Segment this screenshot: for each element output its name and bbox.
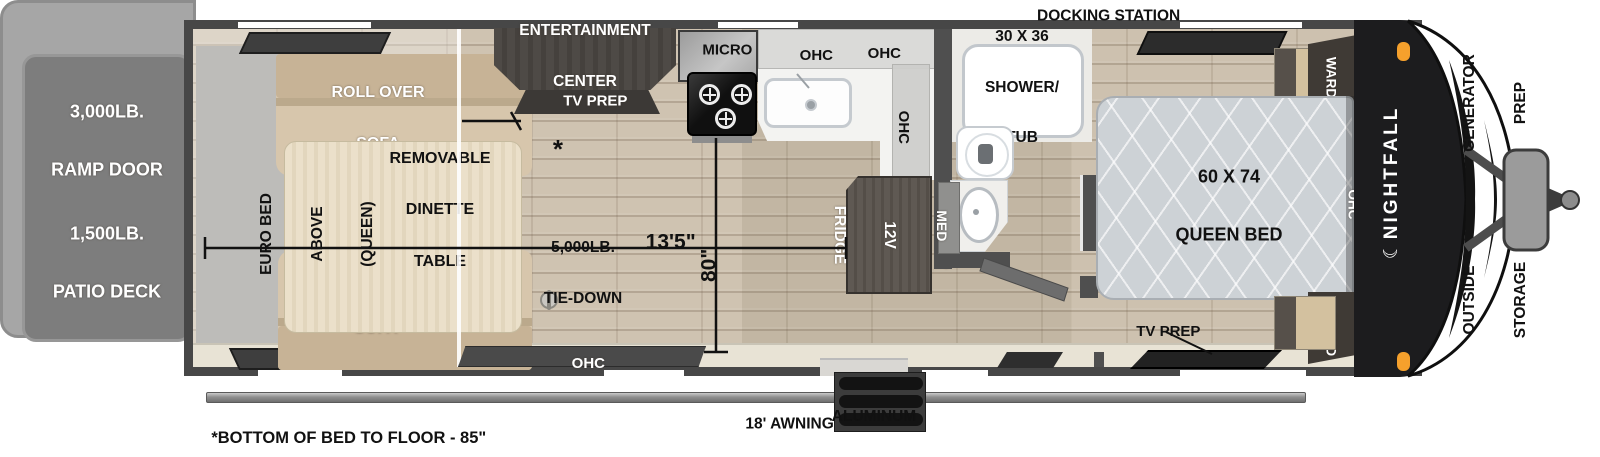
rv-floorplan-diagram: 3,000LB. RAMP DOOR 1,500LB. PATIO DECK R… — [0, 0, 1600, 457]
generator-prep-label: GENERATOR PREP — [1429, 54, 1563, 152]
bedroom-wall-nub — [1094, 352, 1104, 367]
med-label: MED — [934, 195, 964, 242]
width-dimension: 80" — [675, 249, 720, 306]
ohc-label-vertical: OHC — [895, 94, 927, 144]
burner — [699, 84, 720, 105]
microwave-label: MICRO — [686, 27, 753, 76]
burner — [715, 108, 736, 129]
tie-down-label: 5,000LB. TIE-DOWN — [544, 207, 622, 341]
stove-base — [692, 136, 752, 143]
bedroom-tv-panel — [1130, 350, 1282, 369]
kitchen-sink — [764, 78, 852, 128]
bedroom-tv-prep-label: TV PREP — [1120, 308, 1201, 340]
brand-logo: ☾NIGHTFALL — [1361, 106, 1423, 293]
length-dimension: 13'5" — [622, 208, 695, 253]
ohc-label-left: OHC — [783, 32, 833, 64]
burner — [731, 84, 752, 105]
step-label: ALUMINUM STABLE STEP — [821, 376, 927, 457]
window-slot — [604, 370, 684, 376]
ohc-label-right: OHC — [851, 30, 901, 62]
asterisk-mark: * — [524, 107, 563, 163]
awning-label: 18' AWNING — [728, 399, 834, 432]
docking-station-label: DOCKING STATION — [1020, 0, 1180, 25]
outside-storage-label: OUTSIDE STORAGE — [1429, 262, 1563, 338]
nightstand-bottom — [1274, 296, 1336, 350]
dinette-label: REMOVABLE DINETTE TABLE — [389, 115, 490, 305]
window-slot — [922, 370, 988, 376]
euro-bed-label: EURO BED ABOVE (QUEEN) — [226, 193, 410, 275]
wardrobe-top-label: WARD — [1323, 42, 1352, 98]
bed-height-note: *BOTTOM OF BED TO FLOOR - 85" — [193, 412, 486, 448]
queen-bed-label: 60 X 74 QUEEN BED — [1175, 128, 1282, 284]
toilet — [956, 126, 1014, 180]
window-slot — [1180, 370, 1306, 376]
stove — [687, 72, 757, 136]
bedroom-top-mat — [1136, 31, 1287, 55]
bath-wall-bottom — [934, 252, 1010, 268]
garage-ohc-label: OHC — [555, 340, 605, 372]
window-slot — [718, 22, 798, 28]
patio-deck-label: 1,500LB. PATIO DECK — [53, 185, 161, 341]
garage-divider — [457, 29, 461, 367]
entry-side-mat — [997, 352, 1063, 368]
window-slot — [258, 370, 342, 376]
moon-icon: ☾ — [1381, 239, 1402, 259]
window-slot — [1180, 22, 1302, 28]
window-slot — [238, 22, 371, 28]
